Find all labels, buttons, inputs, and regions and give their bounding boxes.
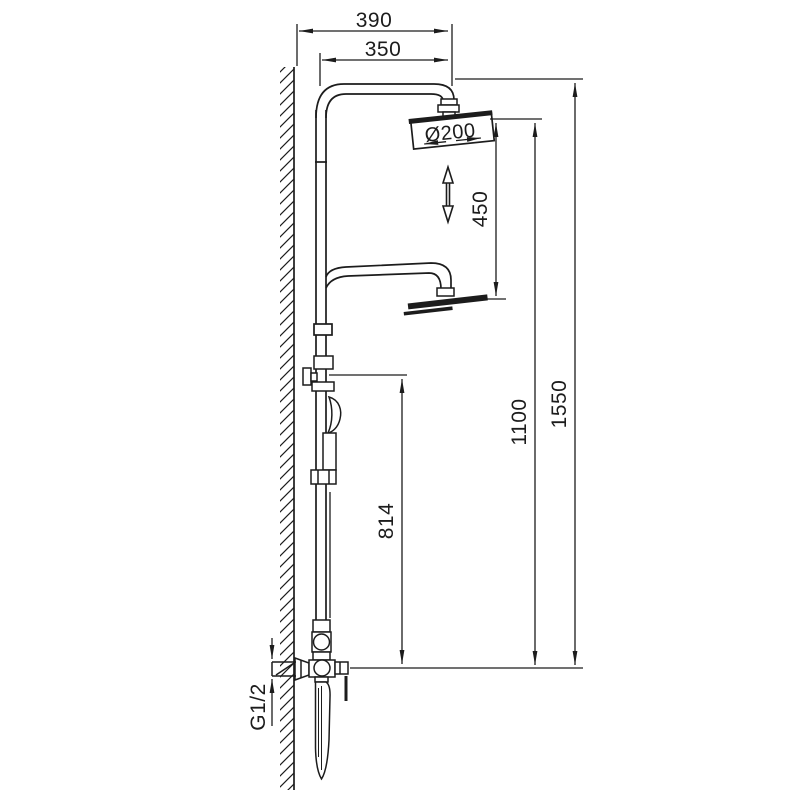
height-adjust-arrow-icon	[443, 167, 453, 222]
wall-bracket	[303, 356, 334, 391]
diverter-connector	[312, 620, 331, 660]
wall	[280, 67, 294, 790]
valve-outlet-port	[335, 662, 348, 674]
shower-system-dimension-drawing: Ø200	[0, 0, 800, 800]
holder-sleeve	[323, 433, 336, 470]
dim-450-label: 450	[469, 191, 492, 228]
dim-814-label: 814	[375, 503, 398, 540]
top-shower-head: Ø200	[409, 113, 495, 150]
technical-drawing-page: Ø200	[0, 0, 800, 800]
dim-1550-label: 1550	[548, 380, 571, 429]
wall-escutcheon	[295, 658, 309, 680]
lower-shower-head	[403, 294, 489, 315]
dim-390-label: 390	[356, 9, 393, 32]
dim-g12-label: G1/2	[247, 683, 270, 731]
pipe-sleeve	[314, 324, 332, 335]
slider-clamp	[311, 470, 336, 484]
wall-hatching	[280, 67, 294, 790]
lower-shower-arm	[326, 263, 454, 296]
valve-cartridge	[314, 660, 330, 676]
hand-shower-wand	[315, 677, 330, 779]
holder-hook	[328, 397, 341, 433]
dim-350-label: 350	[365, 38, 402, 61]
dim-1100-label: 1100	[508, 398, 531, 445]
top-shower-arm	[316, 84, 454, 118]
dimension-labels: 390 350 450 814 1100 1550 G1/2	[247, 9, 571, 731]
